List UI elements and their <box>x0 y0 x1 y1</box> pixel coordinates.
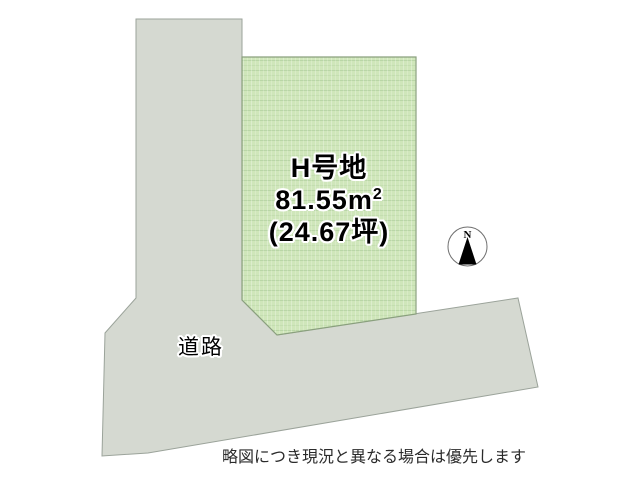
compass-north-label: N <box>464 229 472 241</box>
disclaimer-text: 略図につき現況と異なる場合は優先します <box>222 443 526 467</box>
plot-area-sqm: 81.55m2 <box>269 184 390 216</box>
plot-label: H号地 81.55m2 (24.67坪) <box>269 152 390 248</box>
compass: N <box>448 227 487 266</box>
plot-area-tsubo: (24.67坪) <box>269 216 390 248</box>
site-plan: N H号地 81.55m2 (24.67坪) 道路 略図につき現況と異なる場合は… <box>0 0 640 480</box>
plot-name: H号地 <box>269 152 390 184</box>
plot-area-sqm-exponent: 2 <box>373 186 383 203</box>
road-label: 道路 <box>178 331 224 361</box>
